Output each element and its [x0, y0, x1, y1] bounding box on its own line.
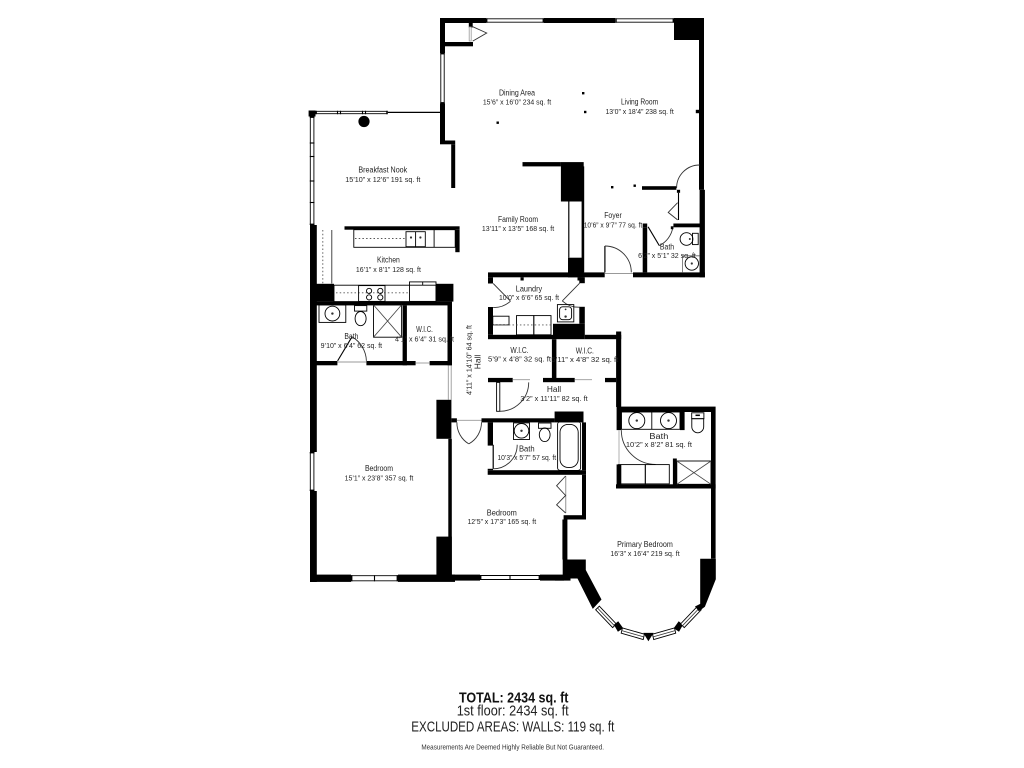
svg-text:5’11” x 4’8” 32 sq. ft: 5’11” x 4’8” 32 sq. ft	[551, 355, 619, 364]
svg-text:10’2” x 8’2” 81 sq. ft: 10’2” x 8’2” 81 sq. ft	[626, 440, 693, 449]
svg-text:12’5” x 17’3” 165 sq. ft: 12’5” x 17’3” 165 sq. ft	[467, 517, 537, 526]
svg-text:Hall: Hall	[474, 355, 483, 370]
svg-text:5’9” x 4’8” 32 sq. ft: 5’9” x 4’8” 32 sq. ft	[488, 355, 552, 364]
svg-text:1st floor: 2434 sq. ft: 1st floor: 2434 sq. ft	[457, 704, 569, 720]
svg-text:EXCLUDED AREAS: WALLS: 119 sq.: EXCLUDED AREAS: WALLS: 119 sq. ft	[411, 719, 615, 736]
svg-text:Living Room: Living Room	[621, 97, 658, 106]
svg-text:15’1” x 23’8” 357 sq. ft: 15’1” x 23’8” 357 sq. ft	[345, 473, 415, 482]
svg-text:6’2” x 5’1” 32 sq. ft: 6’2” x 5’1” 32 sq. ft	[638, 251, 697, 260]
svg-text:13’11” x 13’5” 168 sq. ft: 13’11” x 13’5” 168 sq. ft	[482, 224, 555, 233]
svg-text:13’0” x 18’4” 238 sq. ft: 13’0” x 18’4” 238 sq. ft	[605, 107, 674, 116]
svg-text:Hall: Hall	[547, 385, 562, 394]
svg-text:16’3” x 16’4” 219 sq. ft: 16’3” x 16’4” 219 sq. ft	[610, 549, 680, 558]
svg-text:Laundry: Laundry	[516, 284, 542, 293]
svg-text:Kitchen: Kitchen	[377, 255, 400, 264]
svg-text:15’6” x 16’0” 234 sq. ft: 15’6” x 16’0” 234 sq. ft	[483, 97, 552, 106]
svg-text:10’6” x 9’7” 77 sq. ft: 10’6” x 9’7” 77 sq. ft	[584, 220, 643, 229]
svg-text:10’0” x 6’6” 65 sq. ft: 10’0” x 6’6” 65 sq. ft	[499, 293, 560, 302]
svg-text:4’11” x 14’10” 64 sq. ft: 4’11” x 14’10” 64 sq. ft	[465, 324, 474, 395]
svg-text:Bath: Bath	[344, 332, 358, 341]
svg-text:W.I.C.: W.I.C.	[416, 325, 433, 334]
svg-text:Bedroom: Bedroom	[365, 464, 393, 473]
svg-text:15’10” x 12’6” 191 sq. ft: 15’10” x 12’6” 191 sq. ft	[345, 175, 421, 184]
svg-text:W.I.C.: W.I.C.	[510, 346, 528, 355]
svg-text:Breakfast Nook: Breakfast Nook	[358, 165, 408, 174]
svg-text:Primary Bedroom: Primary Bedroom	[617, 540, 673, 549]
svg-text:Family Room: Family Room	[498, 215, 538, 224]
svg-text:3’2” x 11’11” 82 sq. ft: 3’2” x 11’11” 82 sq. ft	[520, 394, 588, 403]
svg-text:9’10” x 6’4” 62 sq. ft: 9’10” x 6’4” 62 sq. ft	[321, 341, 383, 350]
svg-text:Dining Area: Dining Area	[499, 89, 536, 98]
svg-text:W.I.C.: W.I.C.	[576, 347, 594, 356]
svg-text:16’1” x 8’1” 128 sq. ft: 16’1” x 8’1” 128 sq. ft	[356, 265, 422, 274]
svg-text:10’3” x 5’7” 57 sq. ft: 10’3” x 5’7” 57 sq. ft	[497, 453, 556, 462]
svg-text:Foyer: Foyer	[604, 211, 622, 220]
svg-text:4’1” x 6’4” 31 sq. ft: 4’1” x 6’4” 31 sq. ft	[395, 335, 455, 344]
svg-text:Measurements Are Deemed Highly: Measurements Are Deemed Highly Reliable …	[421, 743, 604, 752]
svg-text:Bedroom: Bedroom	[487, 508, 517, 517]
